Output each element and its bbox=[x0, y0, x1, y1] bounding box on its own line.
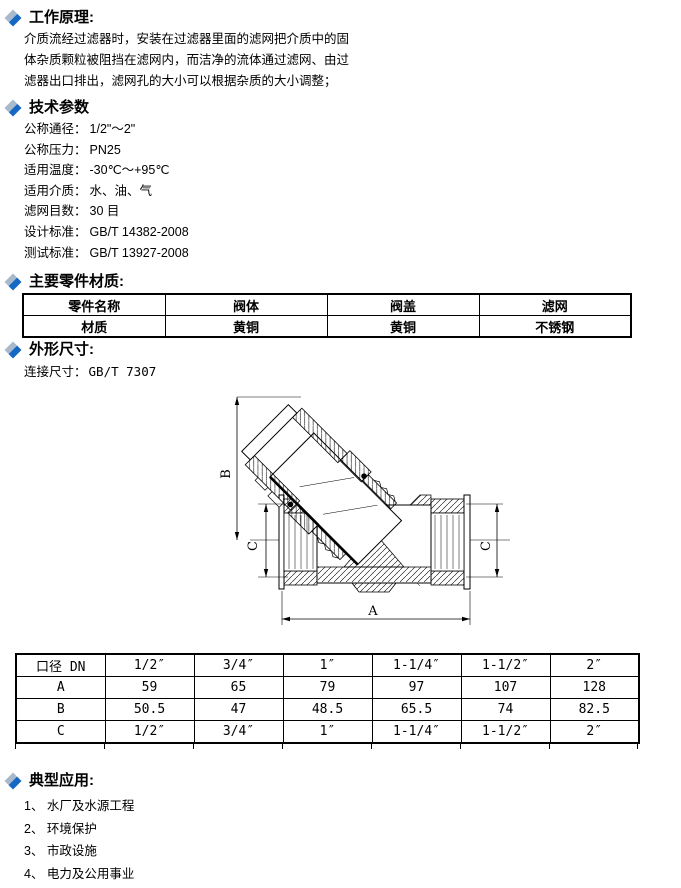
list-item: 2、 环境保护 bbox=[24, 818, 681, 841]
table-cell: 3/4″ bbox=[194, 721, 283, 744]
diamond-bullet-icon bbox=[5, 342, 22, 359]
param-value: GB/T 14382-2008 bbox=[90, 225, 189, 239]
table-cell: 不锈钢 bbox=[479, 316, 631, 338]
table-row: C 1/2″ 3/4″ 1″ 1-1/4″ 1-1/2″ 2″ bbox=[16, 721, 639, 744]
table-cell: B bbox=[16, 699, 105, 721]
heading-text: 主要零件材质: bbox=[29, 273, 124, 291]
materials-table: 零件名称 阀体 阀盖 滤网 材质 黄铜 黄铜 不锈钢 bbox=[22, 293, 632, 338]
param-label: 滤网目数： bbox=[24, 204, 87, 218]
paragraph-line: 介质流经过滤器时，安装在过滤器里面的滤网把介质中的固 bbox=[24, 29, 681, 50]
table-column-stubs bbox=[0, 744, 681, 750]
table-cell: 1/2″ bbox=[105, 654, 194, 677]
param-row: 公称压力：PN25 bbox=[24, 140, 681, 161]
param-row: 滤网目数：30 目 bbox=[24, 201, 681, 222]
dim-label-c-left: C bbox=[246, 541, 261, 551]
datasheet-page: 工作原理: 介质流经过滤器时，安装在过滤器里面的滤网把介质中的固 体杂质颗粒被阻… bbox=[0, 0, 681, 888]
param-value: -30℃～+95℃ bbox=[90, 163, 170, 177]
table-cell: 82.5 bbox=[550, 699, 639, 721]
heading-text: 典型应用: bbox=[29, 772, 94, 790]
dimension-c-right bbox=[466, 504, 503, 577]
table-cell: 65 bbox=[194, 677, 283, 699]
table-cell: 107 bbox=[461, 677, 550, 699]
param-value: 水、油、气 bbox=[90, 184, 153, 198]
working-principle-paragraph: 介质流经过滤器时，安装在过滤器里面的滤网把介质中的固 体杂质颗粒被阻挡在滤网内，… bbox=[24, 29, 681, 92]
param-label: 适用温度： bbox=[24, 163, 87, 177]
table-row: 材质 黄铜 黄铜 不锈钢 bbox=[23, 316, 631, 338]
table-cell: 口径 DN bbox=[16, 654, 105, 677]
table-cell: 65.5 bbox=[372, 699, 461, 721]
table-cell: 74 bbox=[461, 699, 550, 721]
section-working-principle-heading: 工作原理: bbox=[0, 9, 681, 27]
table-cell: 128 bbox=[550, 677, 639, 699]
table-cell: A bbox=[16, 677, 105, 699]
list-item: 3、 市政设施 bbox=[24, 840, 681, 863]
diamond-bullet-icon bbox=[5, 274, 22, 291]
heading-text: 外形尺寸: bbox=[29, 341, 94, 359]
table-cell: 2″ bbox=[550, 654, 639, 677]
dim-label-c-right: C bbox=[479, 541, 494, 551]
param-value: 1/2"～2" bbox=[90, 122, 136, 136]
list-item: 1、 水厂及水源工程 bbox=[24, 795, 681, 818]
table-cell: 1-1/4″ bbox=[372, 654, 461, 677]
note-value: GB/T 7307 bbox=[89, 364, 157, 379]
table-cell: 3/4″ bbox=[194, 654, 283, 677]
param-row: 适用介质：水、油、气 bbox=[24, 181, 681, 202]
diamond-bullet-icon bbox=[5, 10, 22, 27]
table-row: 口径 DN 1/2″ 3/4″ 1″ 1-1/4″ 1-1/2″ 2″ bbox=[16, 654, 639, 677]
table-cell: 材质 bbox=[23, 316, 165, 338]
paragraph-line: 体杂质颗粒被阻挡在滤网内，而洁净的流体通过滤网、由过 bbox=[24, 50, 681, 71]
param-value: GB/T 13927-2008 bbox=[90, 246, 189, 260]
table-cell: 1/2″ bbox=[105, 721, 194, 744]
tech-params-list: 公称通径：1/2"～2" 公称压力：PN25 适用温度：-30℃～+95℃ 适用… bbox=[24, 119, 681, 263]
table-cell: 79 bbox=[283, 677, 372, 699]
connection-size-note: 连接尺寸：GB/T 7307 bbox=[24, 364, 681, 380]
table-cell: 阀盖 bbox=[327, 294, 479, 316]
dim-label-b: B bbox=[219, 469, 234, 479]
table-cell: 1-1/2″ bbox=[461, 654, 550, 677]
param-value: 30 目 bbox=[90, 204, 120, 218]
param-label: 公称压力： bbox=[24, 143, 87, 157]
table-cell: 2″ bbox=[550, 721, 639, 744]
param-label: 适用介质： bbox=[24, 184, 87, 198]
paragraph-line: 滤器出口排出，滤网孔的大小可以根据杂质的大小调整； bbox=[24, 71, 681, 92]
table-cell: C bbox=[16, 721, 105, 744]
section-outline-dims-heading: 外形尺寸: bbox=[0, 341, 681, 359]
section-materials-heading: 主要零件材质: bbox=[0, 273, 681, 291]
table-cell: 59 bbox=[105, 677, 194, 699]
note-label: 连接尺寸： bbox=[24, 365, 87, 379]
table-row: 零件名称 阀体 阀盖 滤网 bbox=[23, 294, 631, 316]
param-label: 公称通径： bbox=[24, 122, 87, 136]
param-row: 公称通径：1/2"～2" bbox=[24, 119, 681, 140]
table-cell: 1-1/4″ bbox=[372, 721, 461, 744]
table-cell: 滤网 bbox=[479, 294, 631, 316]
valve-drawing-svg: B C C bbox=[178, 384, 528, 634]
table-cell: 1″ bbox=[283, 721, 372, 744]
param-row: 适用温度：-30℃～+95℃ bbox=[24, 160, 681, 181]
table-cell: 零件名称 bbox=[23, 294, 165, 316]
heading-text: 技术参数 bbox=[29, 99, 89, 117]
table-row: B 50.5 47 48.5 65.5 74 82.5 bbox=[16, 699, 639, 721]
param-row: 设计标准：GB/T 14382-2008 bbox=[24, 222, 681, 243]
table-cell: 1″ bbox=[283, 654, 372, 677]
heading-text: 工作原理: bbox=[29, 9, 94, 27]
diamond-bullet-icon bbox=[5, 773, 22, 790]
diamond-bullet-icon bbox=[5, 100, 22, 117]
table-cell: 47 bbox=[194, 699, 283, 721]
table-cell: 黄铜 bbox=[327, 316, 479, 338]
table-cell: 97 bbox=[372, 677, 461, 699]
table-cell: 48.5 bbox=[283, 699, 372, 721]
param-value: PN25 bbox=[90, 143, 121, 157]
table-row: A 59 65 79 97 107 128 bbox=[16, 677, 639, 699]
param-row: 测试标准：GB/T 13927-2008 bbox=[24, 243, 681, 264]
param-label: 测试标准： bbox=[24, 246, 87, 260]
right-port bbox=[431, 495, 470, 589]
param-label: 设计标准： bbox=[24, 225, 87, 239]
section-tech-params-heading: 技术参数 bbox=[0, 99, 681, 117]
applications-list: 1、 水厂及水源工程 2、 环境保护 3、 市政设施 4、 电力及公用事业 5、… bbox=[24, 795, 681, 888]
section-applications-heading: 典型应用: bbox=[0, 772, 681, 790]
list-item: 4、 电力及公用事业 bbox=[24, 863, 681, 886]
table-cell: 50.5 bbox=[105, 699, 194, 721]
table-cell: 黄铜 bbox=[165, 316, 327, 338]
dimension-drawing: B C C bbox=[0, 384, 681, 636]
dimension-table: 口径 DN 1/2″ 3/4″ 1″ 1-1/4″ 1-1/2″ 2″ A 59… bbox=[15, 653, 640, 744]
dim-label-a: A bbox=[367, 604, 378, 619]
table-cell: 阀体 bbox=[165, 294, 327, 316]
table-cell: 1-1/2″ bbox=[461, 721, 550, 744]
